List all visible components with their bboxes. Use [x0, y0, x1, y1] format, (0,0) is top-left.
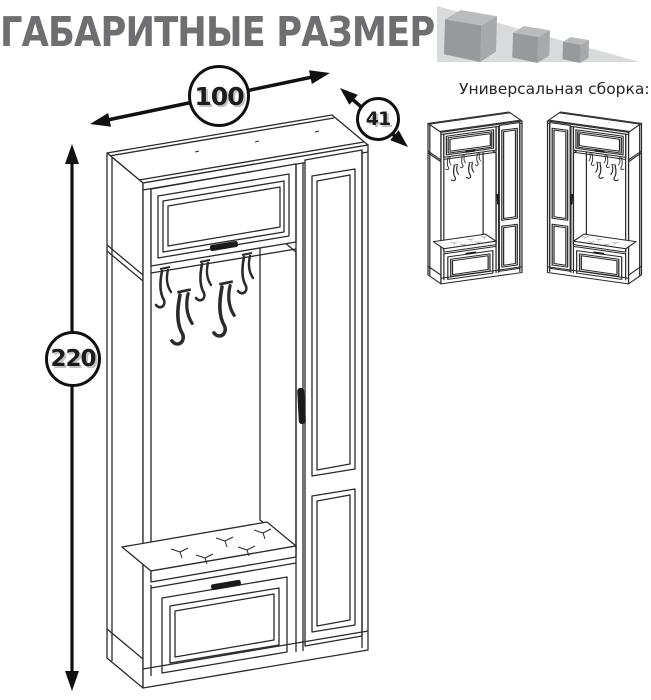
dimension-sheet: ГАБАРИТНЫЕ РАЗМЕРЫ Универсальная сборка:… [0, 0, 651, 700]
main-wardrobe-drawing [107, 115, 368, 688]
assembly-variant-right-drawing [548, 112, 642, 284]
assembly-variant-left-drawing [428, 112, 522, 284]
height-dimension-arrow [65, 144, 79, 691]
width-dimension-badge: 100 [188, 65, 250, 127]
height-dimension-badge: 220 [45, 331, 101, 387]
three-cubes-logo [435, 4, 647, 64]
universal-assembly-label: Универсальная сборка: [459, 80, 650, 98]
page-title: ГАБАРИТНЫЕ РАЗМЕРЫ [0, 8, 470, 56]
logo-cube-medium [512, 26, 550, 63]
logo-cube-large [444, 10, 497, 62]
depth-dimension-badge: 41 [356, 97, 400, 141]
logo-cube-small [563, 37, 590, 63]
